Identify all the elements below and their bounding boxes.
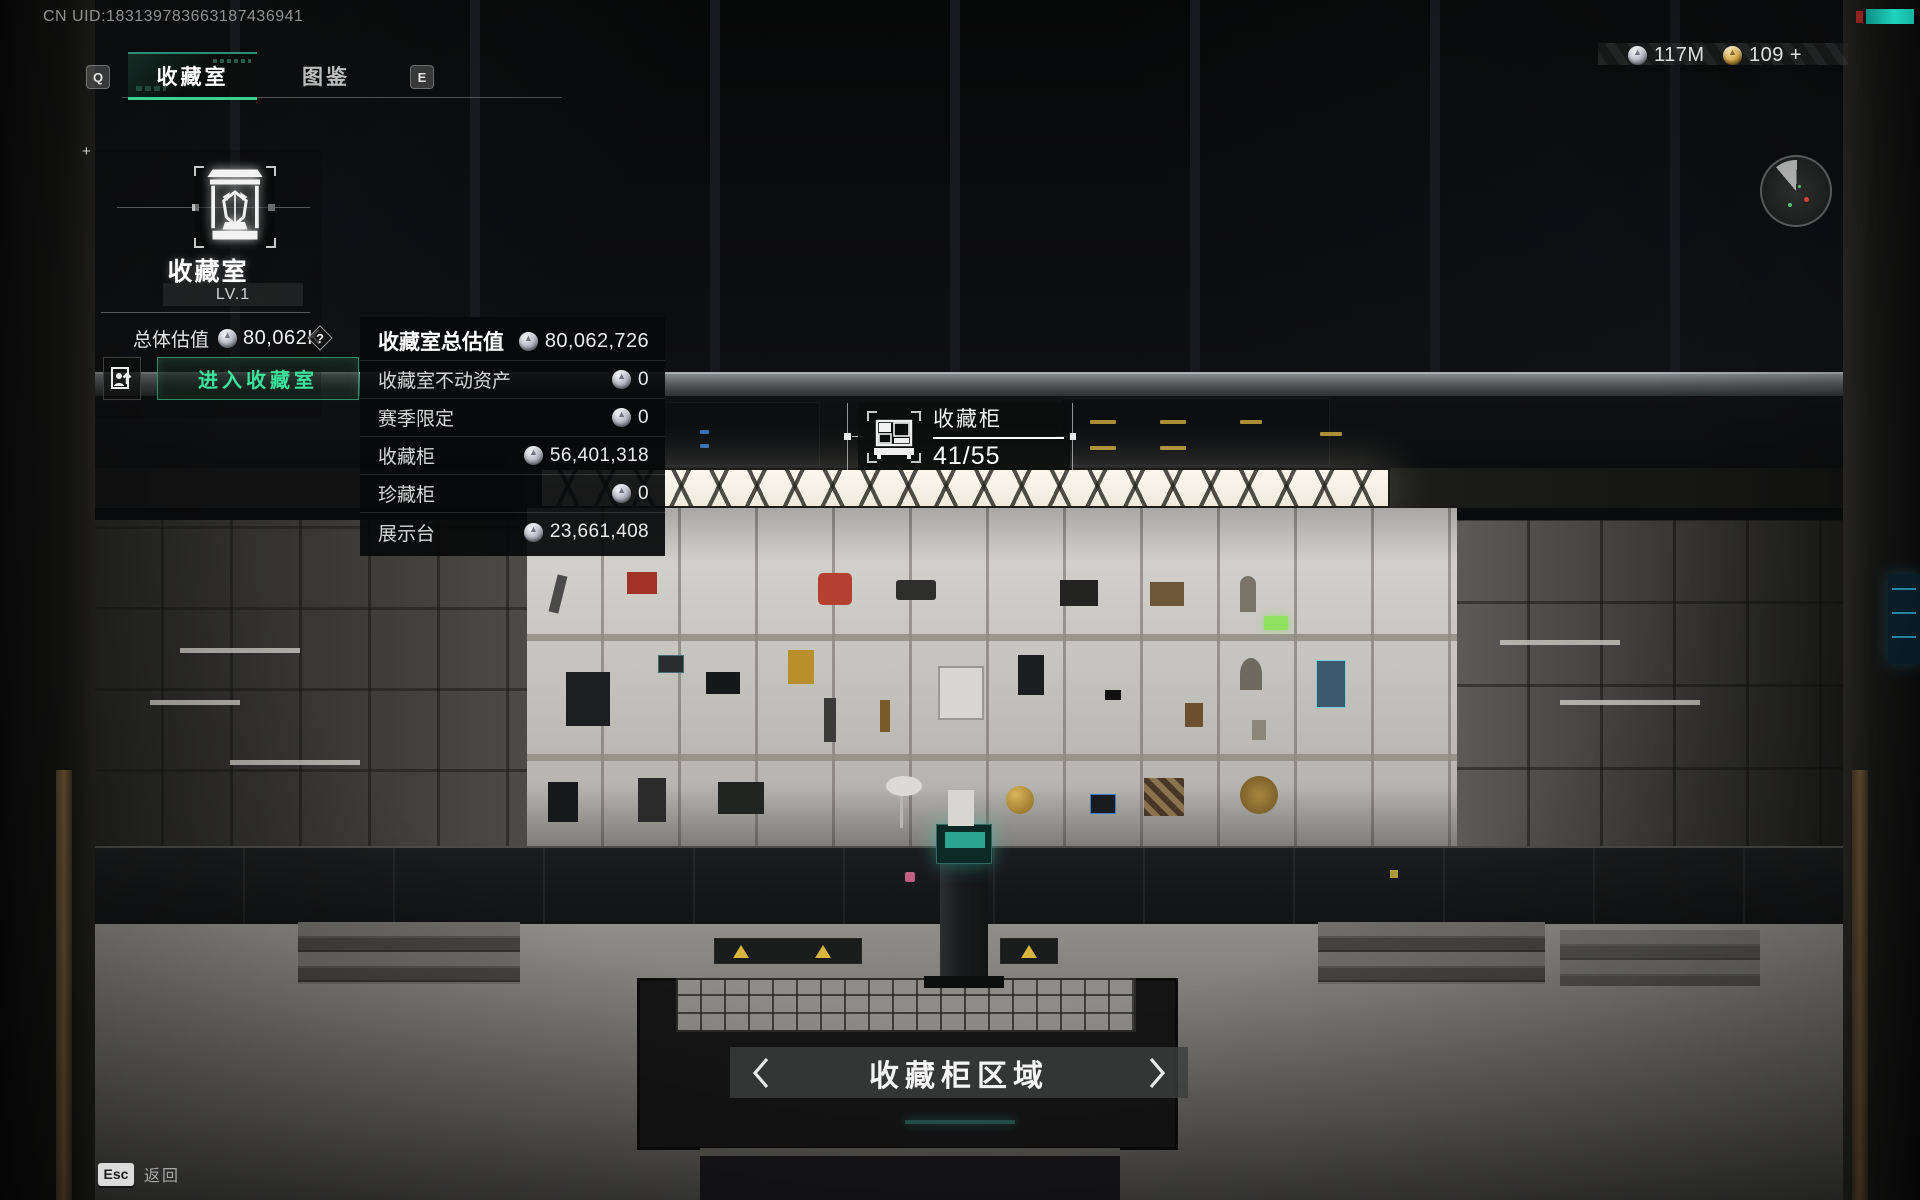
breakdown-value: 0 <box>638 407 649 429</box>
scene-led <box>700 430 709 434</box>
breakdown-value: 23,661,408 <box>550 521 649 543</box>
scene-rack <box>640 402 820 466</box>
total-value-label: 总体估值 <box>133 325 209 352</box>
tab-collection-room-label: 收藏室 <box>157 61 229 91</box>
share-portrait-icon <box>110 366 134 392</box>
breakdown-row: 收藏室不动资产 0 <box>360 360 665 398</box>
breakdown-row: 赛季限定 0 <box>360 398 665 436</box>
silver-coin-icon <box>519 332 538 351</box>
currency-gold-amount: 109 + <box>1749 44 1802 67</box>
shelf-item <box>706 672 740 694</box>
scene-led <box>700 444 709 448</box>
compass-green-dot <box>1788 203 1792 207</box>
scene-shelf-board <box>150 700 240 705</box>
shelf-item <box>1240 576 1256 612</box>
currency-silver: 117M <box>1628 44 1705 66</box>
scene-pit-lower <box>700 1148 1120 1200</box>
silver-coin-icon <box>1628 46 1647 65</box>
bracket-corner <box>867 411 877 421</box>
scene-pit-platform <box>676 978 1136 1032</box>
scene-steps-right <box>1318 922 1545 984</box>
collection-room-iconbox <box>195 167 275 247</box>
shelf-item <box>718 782 764 814</box>
hotkey-q-badge: Q <box>86 65 110 89</box>
hotkey-e-label: E <box>418 70 427 85</box>
scene-hazard-strip <box>714 938 862 964</box>
shelf-item <box>938 666 984 720</box>
shelf-item <box>896 580 936 600</box>
breakdown-row: 珍藏柜 0 <box>360 474 665 512</box>
shelf-item <box>1185 703 1203 727</box>
scene-pillar <box>1852 770 1868 1200</box>
bracket-corner <box>911 411 921 421</box>
shelf-item <box>900 796 903 828</box>
scene-column-left <box>0 0 95 1200</box>
scene-hazard-strip <box>1000 938 1058 964</box>
help-icon[interactable]: ? <box>306 325 334 352</box>
breakdown-value: 80,062,726 <box>545 330 649 353</box>
scene-shelf-board <box>180 648 300 653</box>
scene-side-wall-right <box>1457 520 1843 850</box>
hazard-triangle-icon <box>733 945 749 958</box>
scene-led <box>1160 446 1186 450</box>
panel-corner-mark: + <box>82 143 91 160</box>
shelf-item <box>1060 580 1098 606</box>
scene-monitor-line <box>1892 588 1916 590</box>
value-breakdown-tooltip: 收藏室总估值 80,062,726 收藏室不动资产 0 赛季限定 0 收藏柜 5… <box>360 317 665 556</box>
scene-pit-glow <box>905 1120 1015 1124</box>
scene-led <box>1160 420 1186 424</box>
scene-steps-left <box>298 922 520 984</box>
breakdown-row: 收藏室总估值 80,062,726 <box>360 322 665 360</box>
shelf-item <box>1252 720 1266 740</box>
prev-area-button[interactable] <box>746 1054 776 1092</box>
level-badge: LV.1 <box>163 283 303 306</box>
scene-kiosk-body <box>940 858 988 982</box>
shelf-item <box>1090 794 1116 814</box>
cabinet-marker-divider <box>933 437 1064 439</box>
cabinet-marker-count: 41/55 <box>933 442 1064 471</box>
scene-sticker <box>905 872 915 882</box>
scene-shelf-board <box>230 760 360 765</box>
breakdown-label: 赛季限定 <box>378 404 454 431</box>
scene-monitor-line <box>1892 636 1916 638</box>
back-control[interactable]: Esc 返回 <box>98 1162 180 1186</box>
corner-red-indicator <box>1856 11 1863 23</box>
shelf-item <box>1264 616 1288 630</box>
silver-coin-icon <box>612 484 631 503</box>
total-value-row: 总体估值 80,062K <box>101 324 341 352</box>
next-area-button[interactable] <box>1142 1054 1172 1092</box>
share-button[interactable] <box>103 357 141 400</box>
hotkey-q-label: Q <box>93 70 103 85</box>
breakdown-label: 收藏室不动资产 <box>378 366 511 393</box>
compass-green-dot <box>1798 185 1801 188</box>
silver-coin-icon <box>218 329 237 348</box>
enter-collection-room-button[interactable]: 进入收藏室 <box>157 357 359 400</box>
breakdown-value: 56,401,318 <box>550 445 649 467</box>
breakdown-row: 展示台 23,661,408 <box>360 512 665 550</box>
breakdown-label: 收藏柜 <box>378 442 435 469</box>
shelf-item <box>638 778 666 822</box>
shelf-item <box>1150 582 1184 606</box>
shelf-item <box>788 650 814 684</box>
panel-separator <box>101 312 310 313</box>
breakdown-value: 0 <box>638 483 649 505</box>
player-uid: CN UID:183139783663187436941 <box>43 8 303 26</box>
display-case-icon <box>195 167 275 247</box>
scene-led <box>1240 420 1262 424</box>
shelf-item <box>1144 778 1184 816</box>
hazard-triangle-icon <box>815 945 831 958</box>
shelf-item <box>818 573 852 605</box>
scene-kiosk-screen <box>936 824 992 864</box>
area-nav-bar: 收藏柜区域 <box>730 1047 1188 1098</box>
scene-kiosk-base <box>924 976 1004 988</box>
cabinet-marker-iconbox <box>868 412 920 462</box>
enter-collection-room-label: 进入收藏室 <box>198 364 318 393</box>
breakdown-row: 收藏柜 56,401,318 <box>360 436 665 474</box>
tab-codex[interactable]: 图鉴 <box>260 52 392 100</box>
shelf-item <box>658 655 684 673</box>
scene-monitor-line <box>1892 612 1916 614</box>
cabinet-marker-panel: 收藏柜 41/55 <box>858 403 1070 470</box>
shelf-item <box>1105 690 1121 700</box>
silver-coin-icon <box>612 408 631 427</box>
scene-led <box>1090 420 1116 424</box>
game-screen: CN UID:183139783663187436941 Q 收藏室 图鉴 E … <box>0 0 1920 1200</box>
tab-collection-room[interactable]: 收藏室 <box>128 52 257 100</box>
breakdown-label: 珍藏柜 <box>378 480 435 507</box>
chevron-left-icon <box>750 1056 772 1090</box>
scene-led <box>1320 432 1342 436</box>
scene-shelf-board <box>1500 640 1620 645</box>
chevron-right-icon <box>1146 1056 1168 1090</box>
currency-gold: 109 + <box>1723 44 1802 66</box>
corner-teal-strip <box>1866 9 1914 24</box>
scene-sticker <box>1390 870 1398 878</box>
shelf-item <box>948 790 974 826</box>
shelf-item <box>1240 776 1278 814</box>
cabinet-marker-title: 收藏柜 <box>933 403 1064 433</box>
marker-handle <box>1069 433 1076 440</box>
scene-led <box>1090 446 1116 450</box>
shelf-item <box>880 700 890 732</box>
scene-side-wall-left <box>95 520 527 850</box>
shelf-item <box>886 776 922 796</box>
scene-steps-far-right <box>1560 930 1760 986</box>
shelf-item <box>627 572 657 594</box>
currency-silver-amount: 117M <box>1654 44 1705 67</box>
shelf-item <box>1316 660 1346 708</box>
scene-shelf-line <box>527 634 1457 641</box>
compass-view-cone <box>1765 160 1827 222</box>
breakdown-label: 展示台 <box>378 519 435 546</box>
scene-shelf-board <box>1560 700 1700 705</box>
breakdown-label: 收藏室总估值 <box>378 326 504 356</box>
scene-shelf-line <box>527 754 1457 761</box>
shelf-item <box>1006 786 1034 814</box>
shelf-item <box>548 782 578 822</box>
hazard-triangle-icon <box>1021 945 1037 958</box>
compass-red-dot <box>1804 197 1809 202</box>
level-badge-label: LV.1 <box>216 286 250 304</box>
marker-handle <box>844 433 851 440</box>
back-label: 返回 <box>144 1162 180 1186</box>
silver-coin-icon <box>612 370 631 389</box>
esc-key-badge: Esc <box>98 1163 134 1186</box>
tab-codex-label: 图鉴 <box>302 61 350 91</box>
shelf-item <box>1018 655 1044 695</box>
silver-coin-icon <box>524 446 543 465</box>
bracket-corner <box>867 453 877 463</box>
scene-sky-frame <box>1390 468 1860 508</box>
tab-deco <box>136 86 166 91</box>
help-icon-glyph: ? <box>316 331 324 346</box>
shelf-item <box>566 672 610 726</box>
scene-pillar <box>56 770 72 1200</box>
hotkey-e-badge: E <box>410 65 434 89</box>
scene-wall-monitor <box>1888 574 1920 664</box>
tab-deco <box>213 59 251 63</box>
shelf-item <box>1240 658 1262 690</box>
silver-coin-icon <box>524 523 543 542</box>
cabinet-marker[interactable]: 收藏柜 41/55 <box>847 403 1073 470</box>
shelf-item <box>824 698 836 742</box>
area-nav-label: 收藏柜区域 <box>869 1051 1049 1095</box>
scene-skylight <box>540 468 1390 508</box>
bracket-corner <box>911 453 921 463</box>
breakdown-value: 0 <box>638 369 649 391</box>
compass-minimap <box>1760 155 1832 227</box>
gold-coin-icon <box>1723 46 1742 65</box>
scene-rack <box>1060 398 1330 466</box>
